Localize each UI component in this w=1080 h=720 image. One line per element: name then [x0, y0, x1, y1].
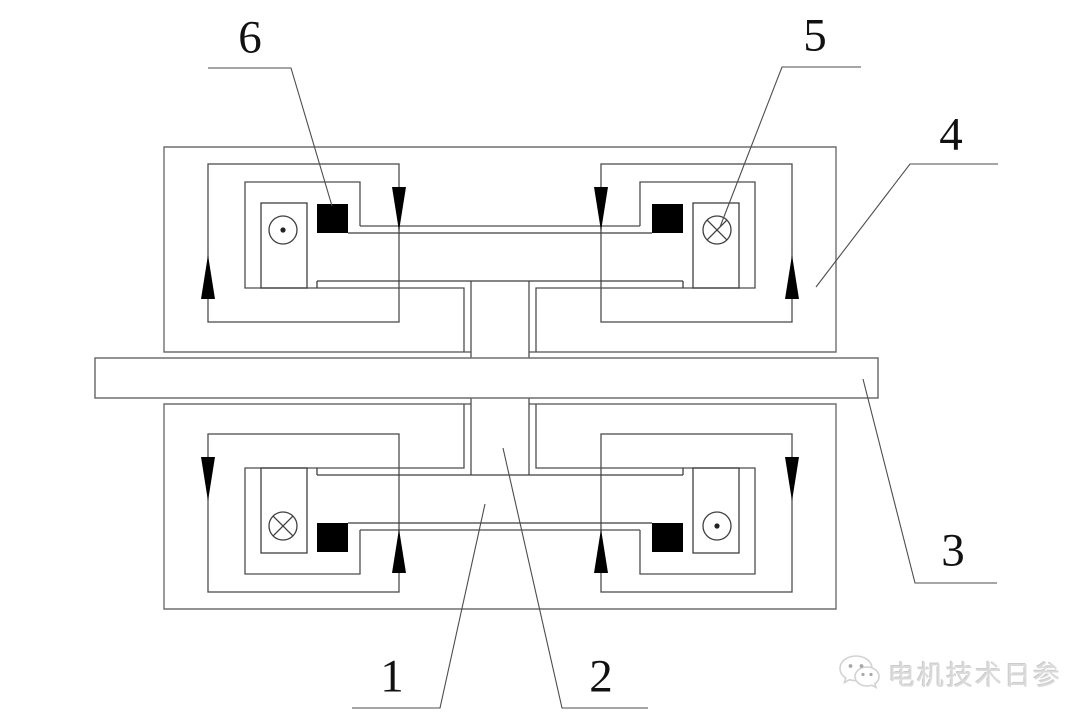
- magnet-square-bottom-left: [317, 523, 348, 552]
- flux-arrow-down: [594, 187, 608, 231]
- flux-arrow-down: [201, 457, 215, 501]
- motor-diagram: [0, 0, 1080, 720]
- flux-arrow-up: [594, 529, 608, 573]
- flux-loop-bottom-right: [601, 434, 792, 592]
- part-label-2: 2: [589, 654, 613, 701]
- flux-loop-top-left: [208, 164, 399, 322]
- magnet-square-top-left: [317, 204, 348, 233]
- flux-arrow-down: [785, 457, 799, 501]
- cross: [707, 220, 727, 240]
- flux-arrows: [201, 187, 799, 573]
- core-window-top-right: [536, 182, 755, 352]
- flux-arrow-up: [785, 255, 799, 299]
- core-windows: [245, 182, 755, 574]
- core-window-bottom-right: [536, 404, 755, 574]
- leader-line-1: [352, 504, 485, 708]
- dot: [714, 523, 719, 528]
- flux-loops: [208, 164, 792, 592]
- lower-stator-outline: [164, 404, 836, 609]
- magnet-blocks: [317, 204, 683, 552]
- watermark: 电机技术日参: [836, 650, 1072, 696]
- motor-diagram-page: 6 5 4 3 1 2 电机技术日参: [0, 0, 1080, 720]
- flux-loop-top-right: [601, 164, 792, 322]
- part-label-6: 6: [238, 15, 262, 62]
- magnet-square-top-right: [652, 204, 683, 233]
- cross: [273, 516, 293, 536]
- wechat-small-bubble: [855, 667, 879, 688]
- wechat-logo-icon: [836, 652, 882, 694]
- flux-loop-bottom-left: [208, 434, 399, 592]
- stator-outlines: [164, 147, 836, 609]
- leader-line-4: [816, 164, 998, 287]
- dot: [280, 227, 285, 232]
- core-window-bottom-left: [245, 404, 464, 574]
- middle-rotor-bar: [95, 358, 878, 398]
- coils: [261, 203, 739, 553]
- watermark-text: 电机技术日参: [888, 654, 1062, 693]
- part-label-3: 3: [941, 528, 965, 575]
- flux-arrow-up: [392, 529, 406, 573]
- armature-bridges: [317, 233, 683, 523]
- leader-lines: [208, 67, 998, 708]
- leader-line-3: [863, 379, 997, 583]
- upper-stator-outline: [164, 147, 836, 352]
- leader-line-2: [503, 448, 648, 708]
- part-label-5: 5: [803, 13, 827, 60]
- flux-arrow-down: [392, 187, 406, 231]
- center-posts: [471, 281, 529, 475]
- core-window-top-left: [245, 182, 464, 352]
- magnet-square-bottom-right: [652, 523, 683, 552]
- part-label-4: 4: [939, 112, 963, 159]
- lower-bridge: [317, 468, 683, 523]
- part-label-1: 1: [380, 654, 404, 701]
- flux-arrow-up: [201, 255, 215, 299]
- leader-line-6: [208, 68, 332, 206]
- upper-bridge: [317, 233, 683, 288]
